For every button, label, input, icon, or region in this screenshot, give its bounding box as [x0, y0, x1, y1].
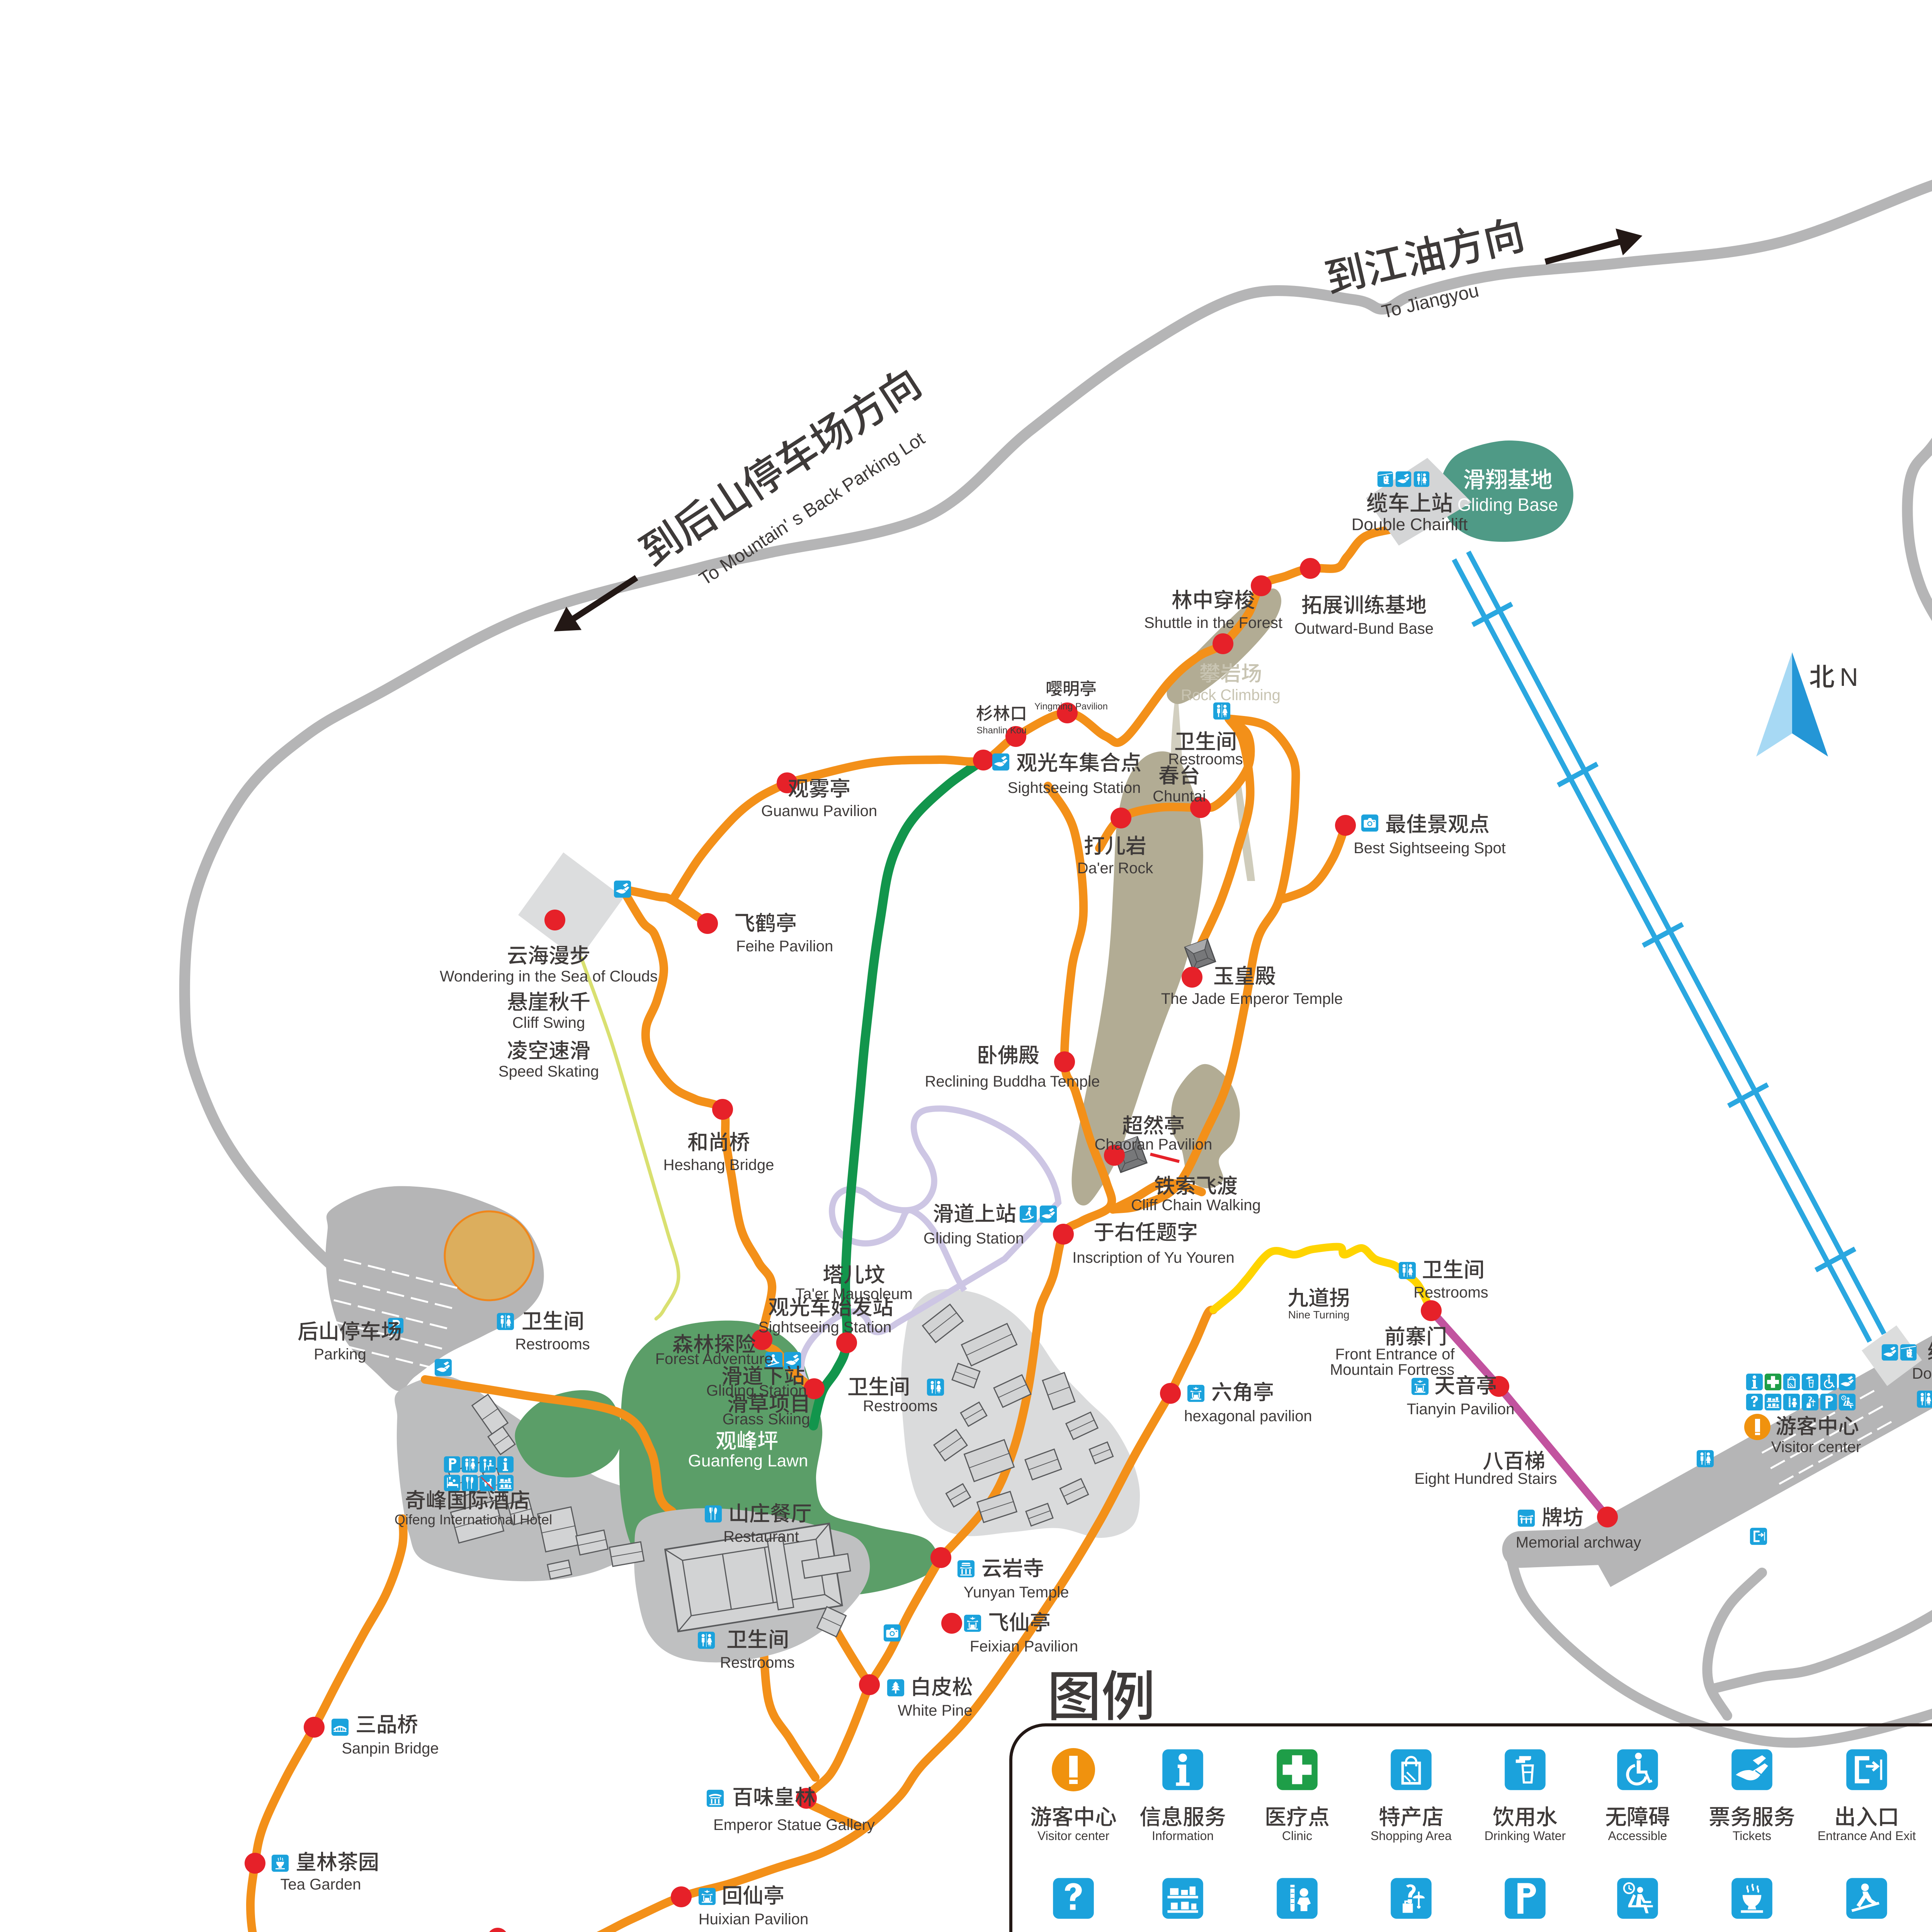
svg-text:Sanpin Bridge: Sanpin Bridge	[342, 1740, 439, 1757]
svg-text:Da'er Rock: Da'er Rock	[1077, 860, 1154, 877]
svg-text:Information: Information	[1152, 1829, 1214, 1843]
svg-text:The Jade Emperor Temple: The Jade Emperor Temple	[1161, 990, 1343, 1007]
svg-text:Guanfeng Lawn: Guanfeng Lawn	[688, 1451, 808, 1470]
svg-text:Yunyan Temple: Yunyan Temple	[964, 1584, 1069, 1601]
svg-text:Entrance And Exit: Entrance And Exit	[1818, 1829, 1916, 1843]
svg-text:Restaurant: Restaurant	[723, 1528, 799, 1545]
svg-text:Parking: Parking	[314, 1346, 366, 1363]
svg-text:Restrooms: Restrooms	[515, 1336, 590, 1353]
svg-text:Qifeng International Hotel: Qifeng International Hotel	[395, 1512, 552, 1527]
svg-text:N: N	[1840, 663, 1858, 691]
svg-text:Guanwu Pavilion: Guanwu Pavilion	[761, 803, 877, 820]
svg-text:Yingming Pavilion: Yingming Pavilion	[1034, 701, 1108, 712]
svg-text:Rock Climbing: Rock Climbing	[1181, 687, 1281, 704]
svg-text:Restrooms: Restrooms	[1168, 751, 1243, 768]
svg-text:Sightseeing Station: Sightseeing Station	[759, 1319, 892, 1336]
svg-text:Accessible: Accessible	[1608, 1829, 1667, 1843]
svg-text:Double Chairlift: Double Chairlift	[1352, 515, 1468, 534]
svg-text:Shuttle in the Forest: Shuttle in the Forest	[1144, 614, 1282, 631]
svg-text:Wondering in the Sea of Clouds: Wondering in the Sea of Clouds	[440, 968, 658, 985]
svg-text:Reclining Buddha Temple: Reclining Buddha Temple	[925, 1073, 1100, 1090]
svg-text:Gliding Base: Gliding Base	[1458, 495, 1558, 515]
svg-text:Restrooms: Restrooms	[1413, 1284, 1488, 1301]
svg-text:Mountain Fortress: Mountain Fortress	[1330, 1361, 1454, 1378]
svg-text:White Pine: White Pine	[898, 1702, 972, 1719]
svg-text:Tea Garden: Tea Garden	[280, 1876, 361, 1893]
svg-text:Double Chairlift: Double Chairlift	[1912, 1365, 1932, 1382]
svg-text:Chuntai: Chuntai	[1153, 788, 1206, 805]
svg-text:Speed Skating: Speed Skating	[498, 1063, 599, 1080]
svg-text:Shopping Area: Shopping Area	[1371, 1829, 1452, 1843]
svg-text:Visitor center: Visitor center	[1037, 1829, 1110, 1843]
svg-text:Chaoran Pavilion: Chaoran Pavilion	[1095, 1136, 1213, 1153]
svg-text:Heshang Bridge: Heshang Bridge	[663, 1156, 774, 1173]
svg-text:Eight Hundred Stairs: Eight Hundred Stairs	[1414, 1470, 1557, 1487]
svg-text:Restrooms: Restrooms	[863, 1398, 937, 1415]
svg-text:Emperor Statue Gallery: Emperor Statue Gallery	[713, 1816, 875, 1833]
svg-text:Cliff Swing: Cliff Swing	[512, 1014, 585, 1031]
svg-text:Nine Turning: Nine Turning	[1288, 1309, 1350, 1321]
svg-text:Forest Adventure: Forest Adventure	[655, 1350, 773, 1367]
svg-text:Best Sightseeing Spot: Best Sightseeing Spot	[1354, 840, 1506, 857]
svg-text:Feixian Pavilion: Feixian Pavilion	[970, 1638, 1078, 1655]
svg-text:Outward-Bund Base: Outward-Bund Base	[1294, 620, 1434, 637]
svg-text:Cliff Chain Walking: Cliff Chain Walking	[1131, 1197, 1261, 1214]
svg-text:Gliding Station: Gliding Station	[923, 1230, 1024, 1247]
svg-text:Huixian Pavilion: Huixian Pavilion	[699, 1911, 809, 1928]
svg-text:Grass Skiing: Grass Skiing	[723, 1411, 810, 1428]
svg-text:Front Entrance of: Front Entrance of	[1335, 1346, 1455, 1363]
svg-text:hexagonal pavilion: hexagonal pavilion	[1184, 1408, 1312, 1425]
svg-text:Tianyin Pavilion: Tianyin Pavilion	[1407, 1401, 1515, 1418]
svg-text:Inscription of Yu Youren: Inscription of Yu Youren	[1072, 1249, 1235, 1266]
svg-text:Visitor center: Visitor center	[1771, 1439, 1861, 1456]
svg-text:Sightseeing Station: Sightseeing Station	[1008, 779, 1141, 796]
svg-text:Feihe Pavilion: Feihe Pavilion	[736, 938, 833, 955]
svg-text:Shanlin Kou: Shanlin Kou	[976, 725, 1026, 736]
svg-text:Memorial archway: Memorial archway	[1516, 1534, 1641, 1551]
svg-text:Clinic: Clinic	[1282, 1829, 1312, 1843]
svg-text:Restrooms: Restrooms	[720, 1654, 794, 1671]
svg-text:Drinking Water: Drinking Water	[1485, 1829, 1566, 1843]
svg-text:Tickets: Tickets	[1733, 1829, 1771, 1843]
